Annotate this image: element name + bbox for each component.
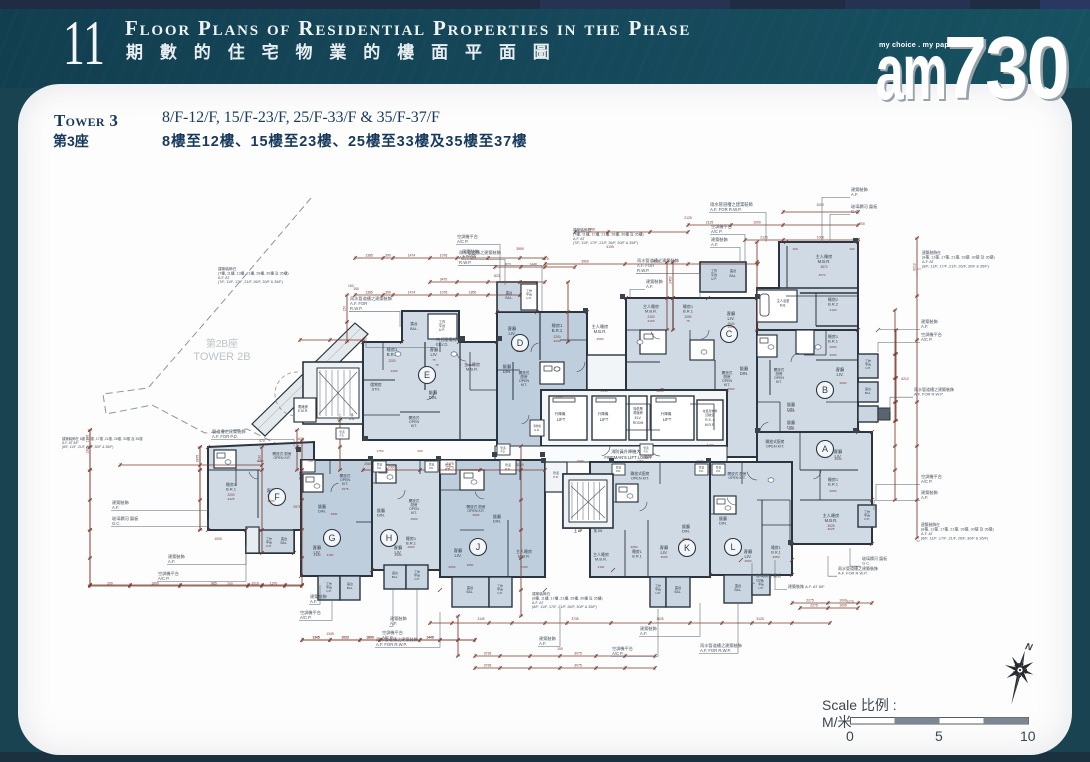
svg-text:DIN.: DIN. — [503, 369, 511, 374]
svg-text:150: 150 — [792, 247, 797, 251]
svg-text:A.F.: A.F. — [168, 559, 175, 564]
svg-text:A/C P.: A/C P. — [921, 337, 933, 342]
svg-text:B.R.1: B.R.1 — [632, 554, 642, 558]
svg-text:2200: 2200 — [388, 359, 395, 363]
svg-text:A.F.: A.F. — [640, 631, 647, 636]
svg-text:主人浴室: 主人浴室 — [777, 298, 790, 303]
svg-text:N: N — [1024, 641, 1034, 654]
svg-text:(7樓, 11樓, 13樓 ,21樓, 28樓, 30樓 及: (7樓, 11樓, 13樓 ,21樓, 28樓, 30樓 及 35樓) — [218, 270, 289, 275]
svg-text:LIFT: LIFT — [600, 417, 609, 422]
svg-text:1300: 1300 — [556, 395, 563, 399]
svg-text:DIN.: DIN. — [493, 519, 501, 524]
svg-text:上 UP: 上 UP — [574, 528, 583, 533]
svg-text:管道: 管道 — [699, 466, 705, 470]
svg-text:10: 10 — [1020, 728, 1036, 744]
svg-text:150: 150 — [343, 306, 347, 312]
svg-text:DIN.: DIN. — [719, 521, 727, 526]
svg-text:2050: 2050 — [408, 545, 415, 549]
svg-text:E: E — [424, 370, 430, 380]
svg-text:A.F.: A.F. — [390, 621, 397, 626]
svg-text:KIT.: KIT. — [342, 482, 348, 486]
svg-text:OPEN KIT.: OPEN KIT. — [631, 476, 649, 480]
svg-text:DIN.: DIN. — [318, 509, 326, 514]
svg-text:U.P.: U.P. — [865, 366, 871, 370]
svg-text:1850: 1850 — [469, 291, 477, 295]
svg-text:100: 100 — [849, 247, 854, 251]
svg-text:J: J — [476, 542, 481, 552]
svg-text:建築裝飾在: 建築裝飾在 — [921, 522, 940, 527]
svg-text:BAL.: BAL. — [730, 274, 737, 278]
svg-text:1000: 1000 — [816, 203, 824, 207]
svg-text:第2B座: 第2B座 — [206, 337, 238, 350]
svg-text:2050: 2050 — [631, 545, 638, 549]
svg-text:2425: 2425 — [228, 497, 235, 501]
svg-text:1000: 1000 — [577, 459, 584, 463]
svg-text:P.D.: P.D. — [699, 469, 704, 473]
svg-text:250: 250 — [417, 449, 422, 453]
svg-text:A.F. FOR R.W.P.: A.F. FOR R.W.P. — [376, 642, 407, 647]
svg-text:3025: 3025 — [828, 527, 835, 531]
svg-text:M.B.R.: M.B.R. — [818, 259, 831, 264]
svg-text:U.P.: U.P. — [439, 328, 445, 332]
svg-text:A.F.: A.F. — [851, 192, 858, 197]
svg-text:OPEN KIT.: OPEN KIT. — [273, 456, 291, 460]
svg-text:BAL.: BAL. — [392, 575, 399, 579]
svg-text:D.N.: D.N. — [349, 417, 355, 421]
svg-text:A: A — [822, 444, 828, 454]
svg-text:E.M.R.: E.M.R. — [298, 409, 308, 413]
svg-text:(8/F, 11/F ,21/F, 26/F, 30/F &: (8/F, 11/F ,21/F, 26/F, 30/F & 35/F) — [62, 445, 113, 449]
svg-text:睡房1: 睡房1 — [632, 549, 642, 554]
svg-text:U.P.: U.P. — [337, 417, 342, 421]
svg-text:管道: 管道 — [716, 466, 722, 470]
svg-text:建築裝飾在: 建築裝飾在 — [532, 591, 551, 596]
svg-text:LIV.: LIV. — [727, 316, 734, 321]
svg-text:1345: 1345 — [312, 636, 320, 640]
svg-text:(8/F, 11/F ,17/F ,21/F, 26/F,: (8/F, 11/F ,17/F ,21/F, 26/F, 30/F & 35/… — [921, 537, 989, 541]
svg-text:6212: 6212 — [913, 263, 917, 271]
svg-text:9965: 9965 — [683, 537, 690, 541]
svg-text:LIFT: LIFT — [663, 417, 672, 422]
svg-text:A.F.: A.F. — [310, 599, 317, 604]
svg-text:G: G — [328, 533, 335, 543]
svg-text:DIN.: DIN. — [682, 529, 690, 534]
svg-text:4500: 4500 — [473, 513, 480, 517]
svg-text:露台: 露台 — [410, 321, 418, 326]
svg-text:P.D.: P.D. — [616, 469, 621, 473]
svg-text:A.F.: A.F. — [711, 242, 718, 247]
svg-text:3990: 3990 — [516, 247, 524, 251]
svg-text:U.P.: U.P. — [326, 589, 332, 593]
svg-text:1385: 1385 — [365, 254, 373, 258]
svg-text:管道: 管道 — [616, 466, 622, 470]
svg-text:建築裝飾在: 建築裝飾在 — [573, 227, 592, 232]
svg-text:A.F. AT: A.F. AT — [218, 276, 230, 280]
svg-text:KIT.: KIT. — [411, 511, 417, 515]
svg-text:3625: 3625 — [656, 617, 663, 621]
svg-text:2060: 2060 — [388, 466, 396, 470]
svg-text:2050: 2050 — [773, 555, 780, 559]
svg-text:ROOM: ROOM — [633, 421, 644, 425]
svg-text:1000: 1000 — [839, 604, 847, 608]
svg-text:2060: 2060 — [364, 462, 372, 466]
svg-text:390: 390 — [385, 291, 391, 295]
svg-text:落 DN: 落 DN — [594, 528, 603, 533]
svg-text:190: 190 — [557, 647, 563, 651]
svg-text:75: 75 — [432, 358, 436, 362]
svg-text:升降機: 升降機 — [555, 411, 566, 416]
svg-text:A.F. FOR P.D.: A.F. FOR P.D. — [212, 434, 238, 439]
svg-text:823: 823 — [505, 263, 511, 267]
svg-text:2100: 2100 — [598, 565, 605, 569]
svg-text:1078: 1078 — [440, 291, 448, 295]
svg-text:2050: 2050 — [830, 353, 837, 357]
svg-text:U.P.: U.P. — [266, 544, 272, 548]
svg-text:U.P.: U.P. — [655, 591, 660, 595]
svg-text:A.F. AT: A.F. AT — [532, 601, 544, 605]
svg-text:3470: 3470 — [440, 278, 448, 282]
svg-text:2600: 2600 — [840, 381, 847, 385]
svg-text:A/C P.: A/C P. — [921, 479, 933, 484]
svg-text:3075: 3075 — [574, 652, 582, 656]
svg-text:A.F. FOR R.W.P.: A.F. FOR R.W.P. — [700, 648, 731, 653]
svg-text:A.F. FOR R.W.P.: A.F. FOR R.W.P. — [710, 207, 742, 212]
svg-text:KIT.: KIT. — [411, 424, 417, 428]
svg-text:C: C — [726, 329, 733, 339]
svg-text:B.R.1: B.R.1 — [552, 328, 563, 333]
svg-text:3100: 3100 — [314, 553, 321, 557]
svg-text:LIV.: LIV. — [836, 372, 843, 377]
svg-text:M.B.R.: M.B.R. — [645, 309, 657, 314]
svg-text:BAL.: BAL. — [281, 541, 288, 545]
svg-text:A/C P.: A/C P. — [457, 239, 469, 244]
svg-text:建築裝飾在: 建築裝飾在 — [218, 266, 237, 271]
svg-text:A.F.: A.F. — [921, 495, 928, 500]
svg-text:3145: 3145 — [477, 617, 484, 621]
svg-text:BAL.: BAL. — [347, 586, 354, 590]
svg-text:1350: 1350 — [637, 459, 644, 463]
svg-text:G.C.: G.C. — [862, 561, 870, 566]
svg-text:1000: 1000 — [214, 537, 222, 541]
svg-text:P.D.: P.D. — [340, 434, 345, 438]
svg-text:3100: 3100 — [644, 455, 652, 459]
svg-text:3735: 3735 — [484, 664, 492, 668]
svg-text:P.D.: P.D. — [501, 450, 506, 454]
svg-text:P.D.: P.D. — [553, 475, 559, 479]
svg-text:2275: 2275 — [810, 604, 818, 608]
svg-text:A.F.: A.F. — [921, 324, 928, 329]
svg-text:露台: 露台 — [730, 268, 736, 273]
svg-text:B.R.1: B.R.1 — [683, 309, 694, 314]
svg-text:DIN.: DIN. — [377, 513, 385, 518]
svg-text:B.R.1: B.R.1 — [771, 550, 781, 554]
svg-text:B.R.1: B.R.1 — [828, 339, 839, 344]
svg-text:2450: 2450 — [669, 276, 673, 284]
svg-text:1448: 1448 — [529, 263, 537, 267]
svg-text:2600: 2600 — [728, 325, 735, 329]
svg-text:730: 730 — [307, 459, 312, 463]
svg-text:1850: 1850 — [469, 254, 477, 258]
svg-text:1474: 1474 — [408, 291, 416, 295]
svg-text:2175: 2175 — [446, 466, 454, 470]
svg-text:75: 75 — [435, 363, 439, 367]
svg-text:管道: 管道 — [377, 463, 383, 467]
svg-text:2975: 2975 — [293, 505, 301, 509]
svg-text:205: 205 — [788, 427, 793, 431]
svg-text:G.C.: G.C. — [112, 521, 121, 526]
svg-text:M.B.R.: M.B.R. — [594, 329, 607, 334]
svg-text:G.C.: G.C. — [851, 209, 860, 214]
svg-text:R.W.P.: R.W.P. — [637, 268, 650, 273]
svg-text:STO.: STO. — [372, 387, 381, 391]
svg-text:2500: 2500 — [268, 499, 275, 503]
svg-text:P.D.: P.D. — [716, 469, 721, 473]
svg-text:1000: 1000 — [839, 599, 847, 603]
svg-text:3735: 3735 — [571, 617, 578, 621]
svg-text:A/C P.: A/C P. — [158, 576, 170, 581]
svg-text:1000: 1000 — [257, 459, 264, 463]
svg-text:2600: 2600 — [661, 555, 668, 559]
svg-text:R.W.P.: R.W.P. — [459, 260, 472, 265]
svg-text:2125: 2125 — [684, 216, 692, 220]
svg-text:2050: 2050 — [830, 489, 837, 493]
svg-text:A.F. AT: A.F. AT — [922, 260, 935, 264]
svg-text:(7/F, 11/F, 17/F ,21/F, 26/F,: (7/F, 11/F, 17/F ,21/F, 26/F, 30/F & 35/… — [573, 241, 638, 245]
svg-text:(8/F, 11/F, 17/F ,21/F, 26/F,: (8/F, 11/F, 17/F ,21/F, 26/F, 30/F & 35/… — [532, 605, 597, 609]
svg-text:U.P.: U.P. — [497, 591, 503, 595]
svg-text:2200: 2200 — [391, 369, 398, 373]
svg-text:0: 0 — [846, 728, 854, 744]
svg-text:A/C P.: A/C P. — [300, 615, 312, 620]
svg-text:LIV.: LIV. — [508, 331, 515, 336]
svg-text:睡房1: 睡房1 — [771, 545, 781, 550]
svg-text:4500: 4500 — [331, 512, 338, 516]
svg-text:M.B.: M.B. — [780, 304, 787, 308]
svg-text:2275: 2275 — [806, 599, 814, 603]
svg-text:2050: 2050 — [830, 345, 837, 349]
svg-text:3100: 3100 — [327, 553, 334, 557]
svg-text:KIT.: KIT. — [521, 383, 527, 387]
svg-text:P.D.: P.D. — [429, 466, 434, 470]
svg-text:BAL.: BAL. — [410, 327, 418, 331]
svg-text:B.R.1: B.R.1 — [828, 482, 839, 487]
svg-text:2650: 2650 — [449, 565, 456, 569]
svg-text:1000: 1000 — [817, 236, 825, 240]
svg-text:U.P.: U.P. — [711, 277, 717, 281]
svg-text:U.P.: U.P. — [864, 517, 870, 521]
svg-text:3100: 3100 — [707, 443, 714, 447]
svg-text:建築裝飾在: 建築裝飾在 — [922, 250, 941, 255]
svg-text:L: L — [730, 542, 735, 552]
svg-text:1000: 1000 — [753, 221, 761, 225]
svg-text:OPEN KIT.: OPEN KIT. — [766, 444, 784, 448]
svg-text:3125: 3125 — [756, 617, 764, 621]
svg-text:KIT.: KIT. — [776, 380, 782, 384]
svg-text:ELV.D.: ELV.D. — [436, 342, 449, 347]
svg-text:儲物房: 儲物房 — [370, 382, 382, 387]
svg-text:1078: 1078 — [440, 254, 448, 258]
svg-text:3075: 3075 — [574, 664, 582, 668]
svg-text:2100: 2100 — [830, 308, 837, 312]
svg-text:P.D.: P.D. — [644, 450, 649, 454]
svg-text:(8樓, 11樓, 17樓 ,21樓, 26樓, 30樓 及: (8樓, 11樓, 17樓 ,21樓, 26樓, 30樓 及 35樓) — [532, 595, 603, 600]
svg-text:ELV.: ELV. — [635, 416, 642, 420]
svg-text:2500: 2500 — [745, 559, 752, 563]
svg-text:2600: 2600 — [517, 349, 524, 353]
svg-text:H.R.: H.R. — [534, 428, 540, 432]
svg-text:開放式廚房: 開放式廚房 — [631, 471, 650, 476]
svg-text:1100: 1100 — [697, 459, 704, 463]
svg-text:BAL.: BAL. — [865, 391, 872, 395]
svg-text:1023: 1023 — [341, 636, 349, 640]
svg-text:A/C P.: A/C P. — [711, 229, 723, 234]
svg-text:2100: 2100 — [521, 565, 528, 569]
svg-text:M.B.R.: M.B.R. — [825, 518, 838, 523]
svg-text:BAL.: BAL. — [735, 588, 742, 592]
svg-text:3150: 3150 — [601, 389, 608, 393]
svg-text:1395: 1395 — [86, 435, 90, 443]
svg-text:開放式廚房: 開放式廚房 — [766, 439, 785, 444]
svg-text:BAL.: BAL. — [675, 590, 682, 594]
svg-text:A.F. FOR R.W.P.: A.F. FOR R.W.P. — [838, 571, 868, 576]
svg-text:M.B.R.: M.B.R. — [466, 367, 478, 372]
svg-text:2600: 2600 — [835, 457, 842, 461]
svg-text:U.P.: U.P. — [414, 577, 420, 581]
svg-text:2125: 2125 — [760, 236, 768, 240]
svg-text:200: 200 — [859, 222, 865, 226]
svg-text:OPEN KIT.: OPEN KIT. — [728, 476, 746, 480]
svg-text:6212: 6212 — [901, 377, 909, 381]
svg-text:B.R.2: B.R.2 — [828, 302, 839, 307]
svg-text:(7/F, 11/F, 17/F ,21/F, 26/F,: (7/F, 11/F, 17/F ,21/F, 26/F, 30/F & 35/… — [218, 280, 283, 284]
svg-text:(8樓, 11樓, 17樓, 21樓, 28樓, 30樓 及: (8樓, 11樓, 17樓, 21樓, 28樓, 30樓 及 35樓) — [922, 255, 995, 260]
svg-text:電線房: 電線房 — [633, 410, 643, 415]
svg-text:U.P.: U.P. — [758, 586, 763, 590]
svg-text:A.F.: A.F. — [646, 284, 653, 289]
svg-text:LIV.: LIV. — [454, 553, 461, 558]
svg-text:2175: 2175 — [446, 462, 454, 466]
svg-text:3070: 3070 — [819, 273, 826, 277]
svg-text:(8/F, 11/F, 17/F ,21/F, 26/F,: (8/F, 11/F, 17/F ,21/F, 26/F, 30/F & 35/… — [922, 265, 990, 269]
svg-text:2580: 2580 — [597, 337, 604, 341]
svg-text:A.F.: A.F. — [539, 641, 546, 646]
svg-text:1345: 1345 — [326, 632, 334, 636]
svg-text:1750: 1750 — [377, 449, 384, 453]
svg-text:3960: 3960 — [581, 260, 589, 264]
svg-text:(8樓, 11樓, 17樓, 21樓, 26樓, 30樓 及: (8樓, 11樓, 17樓, 21樓, 26樓, 30樓 及 35樓) — [921, 527, 994, 532]
svg-text:升降機: 升降機 — [661, 411, 672, 416]
svg-text:管道: 管道 — [429, 463, 435, 467]
svg-text:A.F. FOR R.W.P.: A.F. FOR R.W.P. — [914, 392, 944, 397]
svg-text:TOWER 2B: TOWER 2B — [193, 351, 250, 363]
svg-text:BAL.: BAL. — [467, 590, 474, 594]
svg-text:4500: 4500 — [411, 517, 418, 521]
svg-text:2800: 2800 — [657, 389, 664, 393]
svg-text:LIV.: LIV. — [430, 352, 437, 357]
svg-text:建築裝飾 A.F. AT 8/F: 建築裝飾 A.F. AT 8/F — [788, 583, 825, 589]
svg-text:露台: 露台 — [506, 290, 513, 295]
svg-text:管道: 管道 — [500, 446, 506, 450]
svg-text:A.F.: A.F. — [462, 254, 469, 259]
svg-text:2200: 2200 — [554, 339, 561, 343]
svg-text:1385: 1385 — [365, 291, 373, 295]
svg-text:A/C P.: A/C P. — [612, 651, 624, 656]
svg-text:P.D.: P.D. — [377, 466, 382, 470]
svg-text:回收室: 回收室 — [705, 412, 714, 417]
svg-text:75: 75 — [686, 319, 690, 323]
svg-text:G.C.: G.C. — [756, 578, 764, 583]
svg-text:F: F — [274, 492, 280, 502]
svg-text:4105: 4105 — [606, 245, 614, 249]
svg-text:M.B.R.: M.B.R. — [595, 557, 607, 562]
svg-text:823: 823 — [494, 274, 500, 278]
svg-text:BAL.: BAL. — [505, 296, 512, 300]
svg-text:1474: 1474 — [408, 254, 416, 258]
svg-text:R.W.P.: R.W.P. — [350, 306, 363, 311]
svg-text:管道: 管道 — [339, 430, 345, 434]
svg-text:B: B — [822, 385, 828, 395]
svg-text:管道: 管道 — [643, 446, 649, 450]
svg-text:75: 75 — [725, 389, 729, 393]
svg-text:390: 390 — [385, 254, 391, 258]
svg-text:2500: 2500 — [395, 553, 402, 557]
svg-text:3670: 3670 — [820, 265, 827, 269]
svg-text:H: H — [386, 533, 393, 543]
svg-text:5: 5 — [935, 728, 943, 744]
svg-text:A.F. AT: A.F. AT — [573, 237, 585, 241]
svg-text:U.P.: U.P. — [526, 296, 532, 300]
svg-text:3735: 3735 — [484, 652, 492, 656]
svg-text:升降機: 升降機 — [598, 411, 609, 416]
svg-text:A.F.: A.F. — [112, 505, 119, 510]
svg-text:2875: 2875 — [196, 455, 200, 463]
svg-text:LIFT: LIFT — [557, 417, 566, 422]
svg-text:2650: 2650 — [467, 563, 474, 567]
svg-text:D: D — [517, 338, 524, 348]
svg-text:1575: 1575 — [342, 487, 349, 491]
svg-text:A.F. AT: A.F. AT — [921, 532, 934, 536]
svg-text:9965: 9965 — [788, 409, 795, 413]
svg-text:2100: 2100 — [648, 319, 655, 323]
svg-text:1449: 1449 — [426, 636, 434, 640]
svg-text:150: 150 — [348, 284, 354, 288]
svg-text:B.R.1: B.R.1 — [226, 487, 237, 492]
svg-text:K: K — [684, 543, 690, 553]
svg-text:150: 150 — [353, 287, 359, 291]
svg-text:DIN.: DIN. — [740, 371, 748, 376]
svg-text:(7樓, 11樓, 17樓, 21樓, 28樓, 30樓 及: (7樓, 11樓, 17樓, 21樓, 28樓, 30樓 及 35樓) — [573, 231, 644, 236]
svg-text:1800: 1800 — [366, 636, 374, 640]
